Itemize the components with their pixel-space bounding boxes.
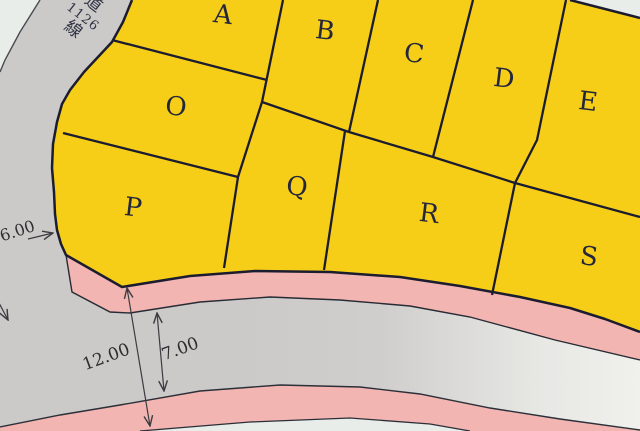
lot-label-s: S: [578, 241, 599, 273]
lot-label-p: P: [122, 192, 143, 224]
lot-label-o: O: [164, 91, 189, 123]
lot-label-c: C: [402, 38, 425, 70]
lot-label-d: D: [492, 63, 516, 95]
site-plan-svg: A B C D E O P Q R S 12.00 7.00 6.00 道 11…: [0, 0, 640, 431]
lot-label-e: E: [577, 86, 599, 118]
site-plan: A B C D E O P Q R S 12.00 7.00 6.00 道 11…: [0, 0, 640, 431]
lot-label-b: B: [314, 15, 337, 47]
lot-label-q: Q: [285, 171, 310, 203]
